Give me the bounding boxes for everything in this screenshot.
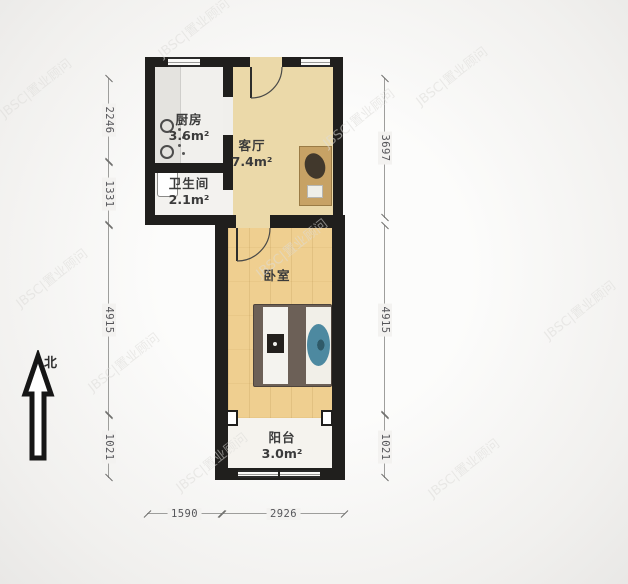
door-swing-arcs (0, 0, 628, 584)
bathroom-name: 卫生间 (152, 176, 226, 192)
balcony-name: 阳台 (242, 430, 322, 446)
living-room-area: 7.4m² (212, 154, 292, 170)
bathroom-label: 卫生间 2.1m² (152, 176, 226, 208)
kitchen-name: 厨房 (157, 112, 221, 128)
bedroom-name: 卧室 (237, 268, 317, 284)
living-room-label: 客厅 7.4m² (212, 138, 292, 170)
bathroom-area: 2.1m² (152, 192, 226, 208)
living-room-name: 客厅 (212, 138, 292, 154)
bedroom-label: 卧室 (237, 268, 317, 284)
balcony-area: 3.0m² (242, 446, 322, 462)
floor-plan: JBSC|置业顾问 JBSC|置业顾问 JBSC|置业顾问 JBSC|置业顾问 … (0, 0, 628, 584)
balcony-label: 阳台 3.0m² (242, 430, 322, 462)
